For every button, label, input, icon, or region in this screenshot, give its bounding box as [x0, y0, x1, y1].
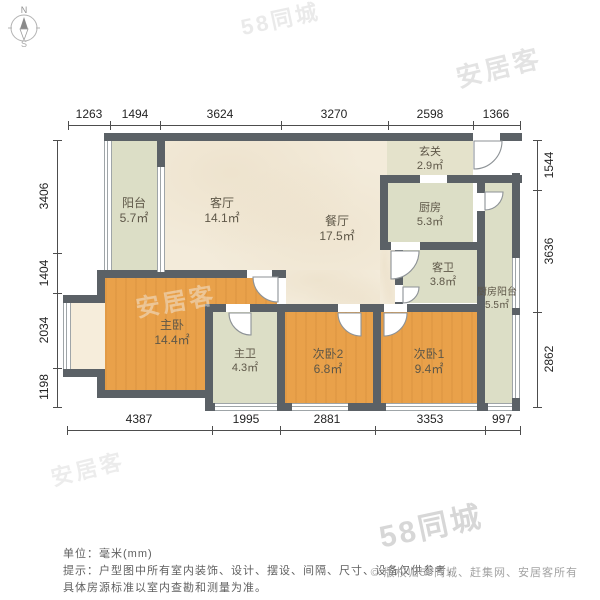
dim-tick	[280, 426, 281, 435]
window-bedroom1	[386, 403, 477, 411]
room-label-kitchen-balcony: 厨房阳台 5.5㎡	[467, 286, 527, 312]
room-name: 厨房	[400, 201, 460, 215]
watermark: 58同城	[375, 492, 487, 557]
wall-segment	[447, 175, 522, 183]
dim-tick	[53, 253, 62, 254]
dim-top-4: 2598	[400, 107, 460, 121]
opening-master-bath	[226, 304, 250, 312]
dim-tick	[473, 121, 474, 130]
opening-entry	[473, 133, 500, 141]
room-label-master-bath: 主卫 4.3㎡	[215, 347, 275, 375]
room-name: 客厅	[182, 196, 262, 211]
window-master-bath	[215, 403, 277, 411]
opening-kitchen-balcony	[477, 193, 485, 211]
wall-segment	[477, 183, 485, 193]
dim-right-0: 1544	[542, 130, 556, 200]
dim-line-top	[68, 125, 520, 126]
room-area: 2.9㎡	[400, 159, 460, 173]
room-label-guest-bath: 客卫 3.8㎡	[413, 261, 473, 289]
room-name: 餐厅	[297, 214, 377, 229]
dim-tick	[375, 426, 376, 435]
dim-bottom-4: 997	[472, 412, 532, 426]
window-kitchen-balcony	[488, 403, 512, 411]
opening-bedroom1	[384, 304, 407, 312]
dim-tick	[281, 121, 282, 130]
wall-segment	[500, 133, 522, 141]
room-area: 9.4㎡	[389, 362, 469, 377]
dim-top-3: 3270	[304, 107, 364, 121]
room-name: 玄关	[400, 145, 460, 159]
wall-segment	[512, 173, 520, 258]
wall-segment	[348, 403, 386, 411]
room-area: 5.5㎡	[467, 299, 527, 312]
room-area: 17.5㎡	[297, 229, 377, 244]
door-arc-entry	[474, 141, 502, 169]
wall-segment	[250, 304, 338, 312]
room-area: 5.3㎡	[400, 215, 460, 229]
dim-tick	[485, 426, 486, 435]
wall-segment	[373, 312, 381, 404]
room-area: 6.8㎡	[288, 362, 368, 377]
room-area: 3.8㎡	[413, 275, 473, 289]
dim-tick	[53, 407, 62, 408]
room-label-balcony: 阳台 5.7㎡	[104, 196, 164, 226]
footer-unit: 单位：毫米(mm)	[63, 545, 153, 561]
dim-left-0: 3406	[37, 161, 51, 231]
room-label-bedroom1: 次卧1 9.4㎡	[389, 347, 469, 377]
wall-segment	[97, 390, 213, 398]
watermark: 安居客	[452, 38, 545, 95]
wall-segment	[97, 270, 105, 303]
wall-segment	[277, 304, 285, 411]
opening-entry-kitchen	[420, 175, 447, 183]
compass-needle-south	[20, 29, 28, 40]
dim-bottom-3: 3353	[400, 412, 460, 426]
dim-tick	[110, 121, 111, 130]
dim-bottom-0: 4387	[109, 412, 169, 426]
wall-segment	[395, 250, 403, 285]
compass-south-label: S	[21, 39, 27, 49]
dim-line-left	[57, 140, 58, 407]
dim-bottom-2: 2881	[297, 412, 357, 426]
dim-tick	[160, 121, 161, 130]
dim-tick	[533, 190, 542, 191]
compass-needle-north	[20, 17, 28, 29]
dim-tick	[68, 121, 69, 130]
dim-line-bottom	[67, 430, 520, 431]
wall-segment	[420, 242, 485, 250]
room-name: 阳台	[104, 196, 164, 211]
wall-segment	[477, 304, 485, 403]
wall-segment	[477, 403, 488, 411]
dim-tick	[520, 121, 521, 130]
dim-left-3: 1198	[37, 352, 51, 422]
room-area: 5.7㎡	[104, 211, 164, 226]
room-name: 次卧1	[389, 347, 469, 362]
window-right-lower	[512, 315, 520, 398]
room-label-bedroom2: 次卧2 6.8㎡	[288, 347, 368, 377]
dim-tick	[388, 121, 389, 130]
wall-segment	[380, 175, 388, 250]
opening-guest-bath	[395, 285, 403, 302]
dim-tick	[212, 426, 213, 435]
opening-kitchen	[391, 242, 420, 250]
room-area: 14.4㎡	[132, 333, 212, 348]
dim-top-5: 1366	[466, 107, 526, 121]
dim-line-right	[537, 140, 538, 407]
floor-corridor-right	[380, 250, 395, 312]
dim-tick	[67, 426, 68, 435]
dim-tick	[533, 312, 542, 313]
dim-bottom-1: 1995	[216, 412, 276, 426]
watermark: 安居客	[47, 443, 128, 492]
window-bedroom2	[292, 403, 348, 411]
wall-segment	[360, 304, 384, 312]
room-name: 客卫	[413, 261, 473, 275]
room-name: 主卧	[132, 318, 212, 333]
wall-segment	[97, 270, 247, 278]
wall-segment	[104, 133, 473, 141]
wall-segment	[97, 369, 105, 398]
opening-bedroom2	[338, 304, 360, 312]
watermark: 58同城	[238, 0, 323, 42]
wall-segment	[272, 270, 286, 278]
dim-top-2: 3624	[190, 107, 250, 121]
room-label-living: 客厅 14.1㎡	[182, 196, 262, 226]
dim-top-1: 1494	[105, 107, 165, 121]
wall-segment	[512, 398, 520, 411]
room-area: 14.1㎡	[182, 211, 262, 226]
dim-right-2: 2862	[542, 324, 556, 394]
dim-tick	[520, 426, 521, 435]
compass-north-label: N	[21, 5, 28, 15]
room-label-master-bedroom: 主卧 14.4㎡	[132, 318, 212, 348]
dim-tick	[533, 140, 542, 141]
room-label-entry: 玄关 2.9㎡	[400, 145, 460, 173]
footer-note2: 具体房源标准以室内查勘和测量为准。	[63, 579, 267, 595]
window-bay	[63, 303, 71, 369]
room-label-dining: 餐厅 17.5㎡	[297, 214, 377, 244]
dim-tick	[533, 407, 542, 408]
dim-right-1: 3636	[542, 216, 556, 286]
wall-segment	[157, 141, 165, 167]
dim-tick	[53, 293, 62, 294]
dim-tick	[53, 368, 62, 369]
opening-master	[247, 270, 272, 278]
footer-copyright: © 版权归58同城、赶集网、安居客所有	[320, 564, 578, 580]
room-area: 4.3㎡	[215, 361, 275, 375]
room-name: 次卧2	[288, 347, 368, 362]
dim-tick	[53, 140, 62, 141]
floorplan-page: N S 阳台 5.7㎡ 客厅 14.1㎡ 餐厅 17.5㎡ 玄关 2.9㎡ 厨房…	[0, 0, 600, 600]
room-name: 厨房阳台	[467, 286, 527, 299]
compass-icon: N S	[8, 5, 40, 49]
room-label-kitchen: 厨房 5.3㎡	[400, 201, 460, 229]
room-name: 主卫	[215, 347, 275, 361]
